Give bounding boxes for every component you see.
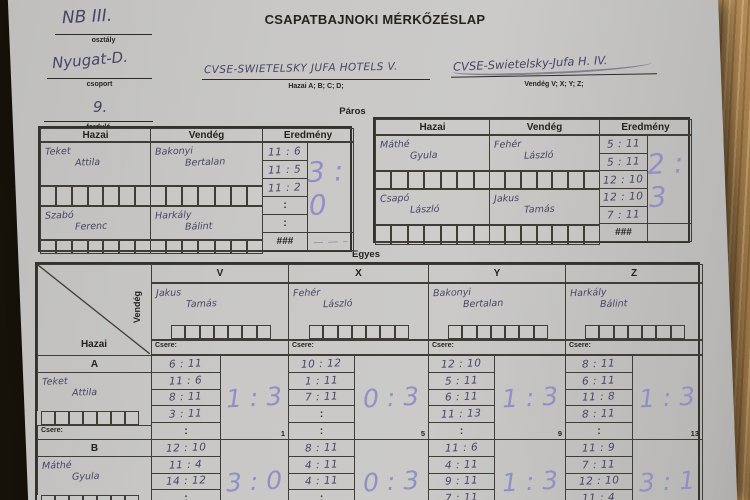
game-score-cell: 7 : 11 [599, 206, 648, 225]
game-score-cell: 12 : 10 [565, 473, 633, 491]
game-score: 11 : 4 [169, 458, 203, 471]
home-team-line [202, 79, 430, 80]
csere-label: Csere: [569, 342, 591, 349]
away-tick-row [171, 325, 271, 339]
tick-box [585, 325, 599, 339]
game-score-cell: : [288, 405, 355, 423]
match-number: 13 [691, 429, 699, 438]
tick-box [408, 225, 424, 245]
game-score: 4 : 11 [445, 458, 479, 471]
game-score: 11 : 6 [445, 441, 479, 454]
tick-box [375, 225, 391, 245]
egyes-home-player-cell: MáthéGyula [37, 456, 152, 495]
tick-box [56, 186, 72, 206]
tick-box [408, 171, 424, 189]
tick-box [215, 186, 231, 206]
round-value: 9. [93, 98, 107, 116]
sheet-title: CSAPATBAJNOKI MÉRKŐZÉSLAP [225, 12, 525, 27]
paros-header-home: Hazai [40, 128, 151, 142]
game-score: 11 : 8 [582, 391, 616, 404]
singles-result: 1 : 3 [501, 382, 559, 414]
game-score: 12 : 10 [603, 191, 644, 204]
empty-score-colon: : [283, 200, 286, 211]
match-sheet-photo: CSAPATBAJNOKI MÉRKŐZÉSLAP NB III. osztál… [0, 0, 750, 500]
paros-table: HazaiVendégEredményTeketAttilaBakonyiBer… [38, 126, 352, 252]
tick-box [200, 325, 214, 339]
tick-box [83, 411, 97, 425]
egyes-table: VendégHazaiVJakusTamásCsere:6 : 1111 : 6… [35, 262, 700, 500]
singles-result-cell: 3 : 1 [632, 439, 703, 500]
match-number: 5 [421, 429, 425, 438]
tick-box [150, 186, 166, 206]
game-score-cell: 5 : 11 [599, 135, 648, 154]
game-score-cell: 10 : 12 [288, 355, 355, 373]
game-score: 10 : 12 [301, 357, 342, 370]
game-score-cell: 7 : 11 [565, 456, 633, 474]
game-score-cell: : [151, 489, 221, 500]
corner-away-label: Vendég [132, 277, 144, 337]
game-score: 11 : 2 [268, 181, 302, 194]
tick-box [457, 225, 473, 245]
tick-box [474, 225, 490, 245]
doubles-result: 2 : 3 [646, 146, 692, 214]
tick-box [198, 240, 214, 254]
tick-box [72, 240, 88, 254]
tick-box [474, 171, 490, 189]
tick-box [375, 171, 391, 189]
tick-box [69, 411, 83, 425]
game-score-cell: : [565, 422, 633, 440]
game-score: 9 : 11 [445, 475, 479, 488]
player-givenname: Ferenc [41, 218, 150, 234]
paros-header-home: Hazai [375, 119, 490, 135]
egyes-home-player-cell: TeketAttila [37, 372, 152, 411]
tick-box [41, 495, 55, 500]
player-givenname: László [490, 147, 599, 163]
game-score-cell: 12 : 10 [151, 439, 221, 457]
home-team-caption: Hazai A; B; C; D; [202, 83, 430, 90]
tick-box [642, 325, 656, 339]
game-score-cell: 11 : 8 [565, 389, 633, 407]
game-score-cell: : [428, 422, 495, 440]
tick-box [40, 240, 56, 254]
game-score-cell: 6 : 11 [565, 372, 633, 390]
game-score: 4 : 11 [305, 475, 339, 488]
tick-box [323, 325, 337, 339]
egyes-away-player-cell: FehérLászló [288, 283, 429, 340]
tick-box [584, 225, 600, 245]
tick-box [166, 240, 182, 254]
game-score: 8 : 11 [582, 357, 616, 370]
singles-result: 1 : 3 [639, 382, 697, 414]
singles-result: 0 : 3 [363, 466, 421, 498]
pair-home-cell: SzabóFerenc [40, 206, 151, 240]
tick-box [309, 325, 323, 339]
tick-box [537, 171, 553, 189]
game-score-cell: 14 : 12 [151, 473, 221, 491]
tick-box [521, 225, 537, 245]
paros-header-away: Vendég [150, 128, 263, 142]
doubles-result-cell: 3 : 0 [307, 142, 354, 233]
game-score: 12 : 10 [603, 173, 644, 186]
division-label: osztály [55, 37, 152, 44]
tick-box [228, 325, 242, 339]
player-givenname: Tamás [490, 201, 599, 217]
game-score-cell: : [151, 422, 221, 440]
game-score: 5 : 11 [607, 155, 641, 168]
tick-box [380, 325, 394, 339]
game-score: 6 : 11 [582, 374, 616, 387]
tick-box [519, 325, 533, 339]
tick-box [135, 186, 151, 206]
paros-header-away: Vendég [489, 119, 600, 135]
egyes-row-label: B [37, 439, 152, 457]
egyes-home-csere-cell: Csere: [37, 425, 152, 440]
egyes-col-header: X [288, 264, 429, 283]
game-score: 14 : 12 [166, 475, 207, 488]
tick-box [537, 225, 553, 245]
game-score: 8 : 11 [169, 391, 203, 404]
pair-tick-row [150, 186, 263, 206]
player-givenname: Attila [38, 384, 151, 400]
pair-home-cell: CsapóLászló [375, 189, 490, 225]
away-team-caption: Vendég V; X; Y; Z; [451, 81, 657, 88]
pair-away-cell: HarkályBálint [150, 206, 263, 240]
game-score: 6 : 11 [169, 357, 203, 370]
result-footer-cell [647, 223, 692, 242]
tick-box [247, 186, 263, 206]
game-score: 11 : 5 [268, 163, 302, 176]
game-score: 7 : 11 [582, 458, 616, 471]
paros-header-result: Eredmény [599, 119, 692, 135]
game-score-cell: 6 : 11 [151, 355, 221, 373]
game-score-cell: : [288, 489, 355, 500]
paper-wrap: CSAPATBAJNOKI MÉRKŐZÉSLAP NB III. osztál… [0, 0, 750, 500]
pair-tick-row [489, 225, 600, 245]
tick-box [215, 240, 231, 254]
game-score-cell: 11 : 5 [262, 160, 308, 179]
tick-box [257, 325, 271, 339]
tick-box [534, 325, 548, 339]
singles-result-cell: 3 : 0 [220, 439, 289, 500]
division-line [55, 34, 152, 35]
pair-away-cell: FehérLászló [489, 135, 600, 171]
tick-box [97, 495, 111, 500]
group-value: Nyugat-D. [51, 48, 128, 73]
match-number: 9 [558, 429, 562, 438]
tick-box [441, 171, 457, 189]
tick-box [88, 240, 104, 254]
game-score-cell: 11 : 2 [262, 178, 308, 197]
empty-score-colon: : [184, 426, 187, 437]
game-score-cell: 11 : 6 [428, 439, 495, 457]
player-givenname: Gyula [376, 147, 489, 163]
game-score: 8 : 11 [305, 441, 339, 454]
tick-box [599, 325, 613, 339]
group-label: csoport [47, 81, 152, 88]
game-score-cell: 8 : 11 [565, 405, 633, 423]
corner-home-label: Hazai [38, 339, 150, 351]
tick-box [628, 325, 642, 339]
tick-box [395, 325, 409, 339]
division-value: NB III. [62, 6, 113, 29]
paros-table: HazaiVendégEredményMáthéGyulaFehérLászló… [373, 117, 690, 243]
tick-box [424, 225, 440, 245]
player-givenname: Bertalan [151, 154, 262, 170]
pair-home-cell: MáthéGyula [375, 135, 490, 171]
tick-box [391, 225, 407, 245]
player-givenname: Bálint [151, 218, 262, 234]
player-givenname: Gyula [38, 468, 151, 484]
tick-box [521, 171, 537, 189]
game-score-cell: 5 : 11 [599, 153, 648, 172]
tick-box [242, 325, 256, 339]
away-tick-row [585, 325, 685, 339]
match-sheet-paper: CSAPATBAJNOKI MÉRKŐZÉSLAP NB III. osztál… [0, 0, 750, 500]
hash-cell: ### [599, 223, 648, 242]
game-score-cell: 11 : 6 [151, 372, 221, 390]
game-score-cell: 11 : 4 [565, 489, 633, 500]
game-score-cell: 4 : 11 [428, 456, 495, 474]
game-score-cell: 8 : 11 [565, 355, 633, 373]
tick-box [505, 171, 521, 189]
game-score-cell: 8 : 11 [288, 439, 355, 457]
game-score-cell: : [288, 422, 355, 440]
tick-box [103, 240, 119, 254]
tick-box [489, 171, 505, 189]
tick-box [568, 171, 584, 189]
game-score: 5 : 11 [607, 138, 641, 151]
doubles-result-cell: 2 : 3 [647, 135, 692, 224]
game-score-cell: 8 : 11 [151, 389, 221, 407]
tick-box [72, 186, 88, 206]
tick-box [119, 240, 135, 254]
tick-box [214, 325, 228, 339]
singles-result-cell: 0 : 35 [354, 355, 429, 440]
hash-text: ### [615, 227, 632, 238]
tick-box [55, 495, 69, 500]
egyes-away-player-cell: BakonyiBertalan [428, 283, 566, 340]
tick-box [366, 325, 380, 339]
tick-box [338, 325, 352, 339]
pair-tick-row [375, 225, 490, 245]
tick-box [477, 325, 491, 339]
singles-result-cell: 1 : 3 [494, 439, 566, 500]
game-score-cell: : [262, 196, 308, 215]
pair-tick-row [375, 171, 490, 189]
tick-box [552, 171, 568, 189]
home-tick-row [41, 495, 139, 500]
empty-score-colon: : [283, 218, 286, 229]
game-score-cell: 4 : 11 [288, 473, 355, 491]
result-footer-cell: — — – [307, 232, 354, 251]
game-score-cell: 7 : 11 [288, 389, 355, 407]
away-tick-row [309, 325, 409, 339]
singles-result-cell: 0 : 3 [354, 439, 429, 500]
tick-box [97, 411, 111, 425]
egyes-csere-cell: Csere: [428, 340, 566, 355]
tick-box [166, 186, 182, 206]
corner-cell: VendégHazai [37, 264, 152, 356]
game-score-cell: 11 : 9 [565, 439, 633, 457]
game-score: 7 : 11 [305, 391, 339, 404]
tick-box [111, 411, 125, 425]
game-score: 1 : 11 [305, 374, 339, 387]
game-score: 7 : 11 [607, 208, 641, 221]
singles-result: 1 : 3 [501, 466, 559, 498]
tick-box [671, 325, 685, 339]
hash-cell: ### [262, 232, 308, 251]
csere-label: Csere: [41, 427, 63, 434]
game-score-cell: 6 : 11 [428, 389, 495, 407]
egyes-col-header: V [151, 264, 289, 283]
tick-box [584, 171, 600, 189]
pair-home-cell: TeketAttila [40, 142, 151, 186]
tick-box [182, 240, 198, 254]
game-score-cell: 3 : 11 [151, 405, 221, 423]
csere-label: Csere: [155, 342, 177, 349]
game-score-cell: 9 : 11 [428, 473, 495, 491]
game-score: 11 : 13 [441, 408, 482, 421]
game-score: 11 : 6 [268, 145, 302, 158]
pair-tick-row [40, 186, 151, 206]
game-score: 7 : 11 [445, 492, 479, 500]
game-score-cell: 12 : 10 [599, 188, 648, 207]
tick-box [231, 240, 247, 254]
tick-box [125, 411, 139, 425]
tick-box [424, 171, 440, 189]
pencil-dash: — — – [313, 235, 349, 248]
tick-box [491, 325, 505, 339]
group-line [47, 78, 152, 79]
csere-label: Csere: [292, 342, 314, 349]
csere-label: Csere: [432, 342, 454, 349]
egyes-csere-cell: Csere: [288, 340, 429, 355]
singles-result-cell: 1 : 31 [220, 355, 289, 440]
empty-score-colon: : [184, 493, 187, 500]
tick-box [352, 325, 366, 339]
egyes-row-label: A [37, 355, 152, 373]
game-score-cell: 4 : 11 [288, 456, 355, 474]
egyes-csere-cell: Csere: [151, 340, 289, 355]
match-number: 1 [281, 429, 285, 438]
tick-box [457, 171, 473, 189]
game-score: 6 : 11 [445, 391, 479, 404]
tick-box [182, 186, 198, 206]
tick-box [231, 186, 247, 206]
empty-score-colon: : [320, 426, 323, 437]
game-score-cell: 11 : 13 [428, 405, 495, 423]
tick-box [391, 171, 407, 189]
tick-box [656, 325, 670, 339]
tick-box [171, 325, 185, 339]
singles-result-cell: 1 : 39 [494, 355, 566, 440]
tick-box [55, 411, 69, 425]
tick-box [103, 186, 119, 206]
game-score-cell: : [262, 214, 308, 233]
paros-header-result: Eredmény [262, 128, 354, 142]
game-score: 5 : 11 [445, 374, 479, 387]
egyes-col-header: Z [565, 264, 703, 283]
doubles-result: 3 : 0 [306, 153, 354, 221]
tick-box [489, 225, 505, 245]
egyes-away-player-cell: HarkályBálint [565, 283, 703, 340]
tick-box [69, 495, 83, 500]
tick-box [448, 325, 462, 339]
empty-score-colon: : [597, 426, 600, 437]
game-score: 3 : 11 [169, 408, 203, 421]
tick-box [150, 240, 166, 254]
singles-result: 3 : 0 [226, 466, 284, 498]
doubles-section-label: Páros [330, 106, 375, 117]
game-score: 12 : 10 [166, 441, 207, 454]
egyes-col-header: Y [428, 264, 566, 283]
tick-box [185, 325, 199, 339]
game-score-cell: 1 : 11 [288, 372, 355, 390]
game-score-cell: 12 : 10 [428, 355, 495, 373]
pair-tick-row [489, 171, 600, 189]
tick-box [568, 225, 584, 245]
game-score: 12 : 10 [441, 357, 482, 370]
tick-box [125, 495, 139, 500]
tick-box [614, 325, 628, 339]
empty-score-colon: : [320, 409, 323, 420]
tick-box [40, 186, 56, 206]
tick-box [83, 495, 97, 500]
game-score: 11 : 6 [169, 374, 203, 387]
hash-text: ### [277, 236, 294, 247]
tick-box [119, 186, 135, 206]
tick-box [247, 240, 263, 254]
pair-away-cell: BakonyiBertalan [150, 142, 263, 186]
game-score: 11 : 4 [582, 492, 616, 500]
tick-box [505, 225, 521, 245]
tick-box [462, 325, 476, 339]
empty-score-colon: : [320, 493, 323, 500]
singles-result: 3 : 1 [639, 466, 697, 498]
player-givenname: László [376, 201, 489, 217]
away-tick-row [448, 325, 548, 339]
egyes-csere-cell: Csere: [565, 340, 703, 355]
tick-box [505, 325, 519, 339]
game-score-cell: 7 : 11 [428, 489, 495, 500]
game-score-cell: 11 : 6 [262, 142, 308, 161]
tick-box [441, 225, 457, 245]
tick-box [111, 495, 125, 500]
tick-box [135, 240, 151, 254]
tick-box [56, 240, 72, 254]
game-score: 8 : 11 [582, 408, 616, 421]
singles-result: 1 : 3 [226, 382, 284, 414]
game-score: 12 : 10 [579, 475, 620, 488]
home-tick-row [41, 411, 139, 425]
pair-tick-row [40, 240, 151, 254]
game-score-cell: 5 : 11 [428, 372, 495, 390]
pair-tick-row [150, 240, 263, 254]
game-score: 4 : 11 [305, 458, 339, 471]
egyes-away-player-cell: JakusTamás [151, 283, 289, 340]
tick-box [41, 411, 55, 425]
singles-result-cell: 1 : 313 [632, 355, 703, 440]
empty-score-colon: : [460, 426, 463, 437]
tick-box [198, 186, 214, 206]
game-score-cell: 12 : 10 [599, 170, 648, 189]
pair-away-cell: JakusTamás [489, 189, 600, 225]
home-team-name: CVSE-SWIETELSKY JUFA HOTELS V. [204, 60, 444, 76]
game-score: 11 : 9 [582, 441, 616, 454]
tick-box [88, 186, 104, 206]
game-score-cell: 11 : 4 [151, 456, 221, 474]
